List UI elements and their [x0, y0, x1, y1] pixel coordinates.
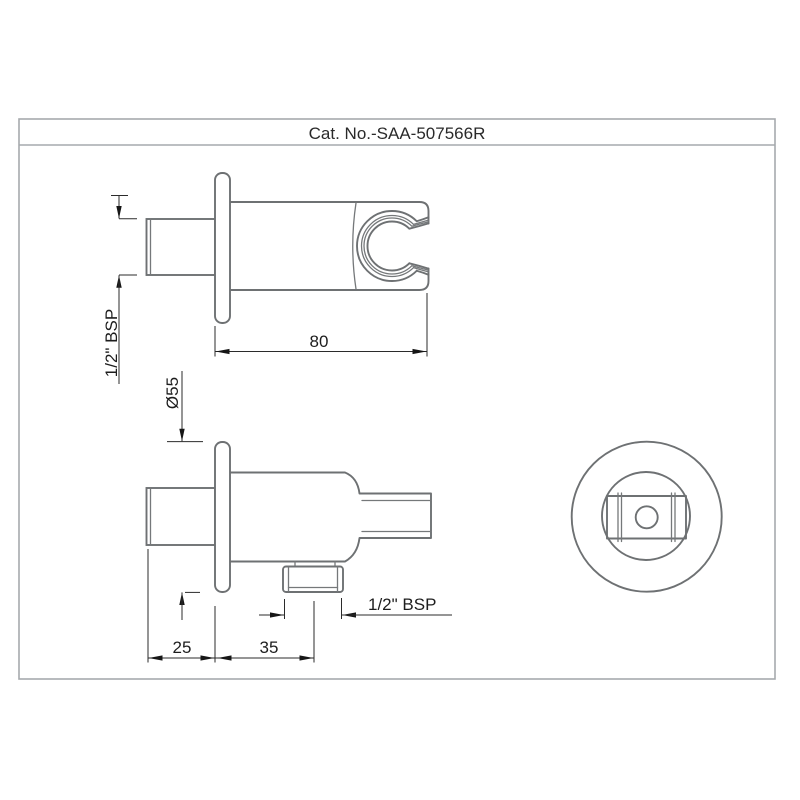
- inlet-stub: [147, 219, 216, 275]
- stub-length-label: 25: [173, 638, 192, 657]
- dimension-arrow: [413, 349, 427, 354]
- outlet-offset-label: 35: [260, 638, 279, 657]
- dimension-arrow: [218, 655, 232, 660]
- holder-end-profile: [607, 493, 686, 542]
- dimension-arrow: [270, 612, 284, 617]
- dimension-arrow: [216, 349, 230, 354]
- inlet-thread-label: 1/2" BSP: [102, 309, 121, 377]
- end-view: [572, 442, 722, 592]
- body-outline-circle: [602, 472, 690, 560]
- dimension-arrow: [149, 655, 163, 660]
- flange-outline-circle: [572, 442, 722, 592]
- inlet-stub-side: [147, 488, 216, 545]
- wall-flange: [215, 173, 230, 323]
- dimension-arrow: [201, 655, 215, 660]
- side-view: Ø55 25 35 1/2" BSP: [147, 371, 453, 663]
- outlet-thread-label: 1/2" BSP: [368, 595, 436, 614]
- flange-diameter-label: Ø55: [163, 377, 182, 409]
- head-joint-line: [353, 203, 356, 289]
- center-hole-circle: [636, 506, 658, 528]
- technical-drawing: Cat. No.-SAA-507566R: [0, 0, 800, 800]
- outlet-nut: [283, 562, 343, 593]
- dimension-arrow: [179, 429, 184, 442]
- body-length-label: 80: [310, 332, 329, 351]
- wall-flange-side: [215, 442, 230, 592]
- catalog-number: Cat. No.-SAA-507566R: [309, 124, 486, 143]
- dim-outlet-thread: 1/2" BSP: [259, 595, 452, 619]
- dimension-arrow: [300, 655, 314, 660]
- drawing-sheet: Cat. No.-SAA-507566R: [0, 0, 800, 800]
- dim-inlet-thread: 1/2" BSP: [102, 196, 137, 385]
- front-body: [230, 202, 429, 290]
- front-view: 80 1/2" BSP: [102, 173, 429, 384]
- holder-clip: [357, 211, 428, 281]
- side-body: [230, 473, 431, 562]
- dim-body-length: 80: [215, 293, 427, 357]
- dimension-arrow: [116, 206, 121, 219]
